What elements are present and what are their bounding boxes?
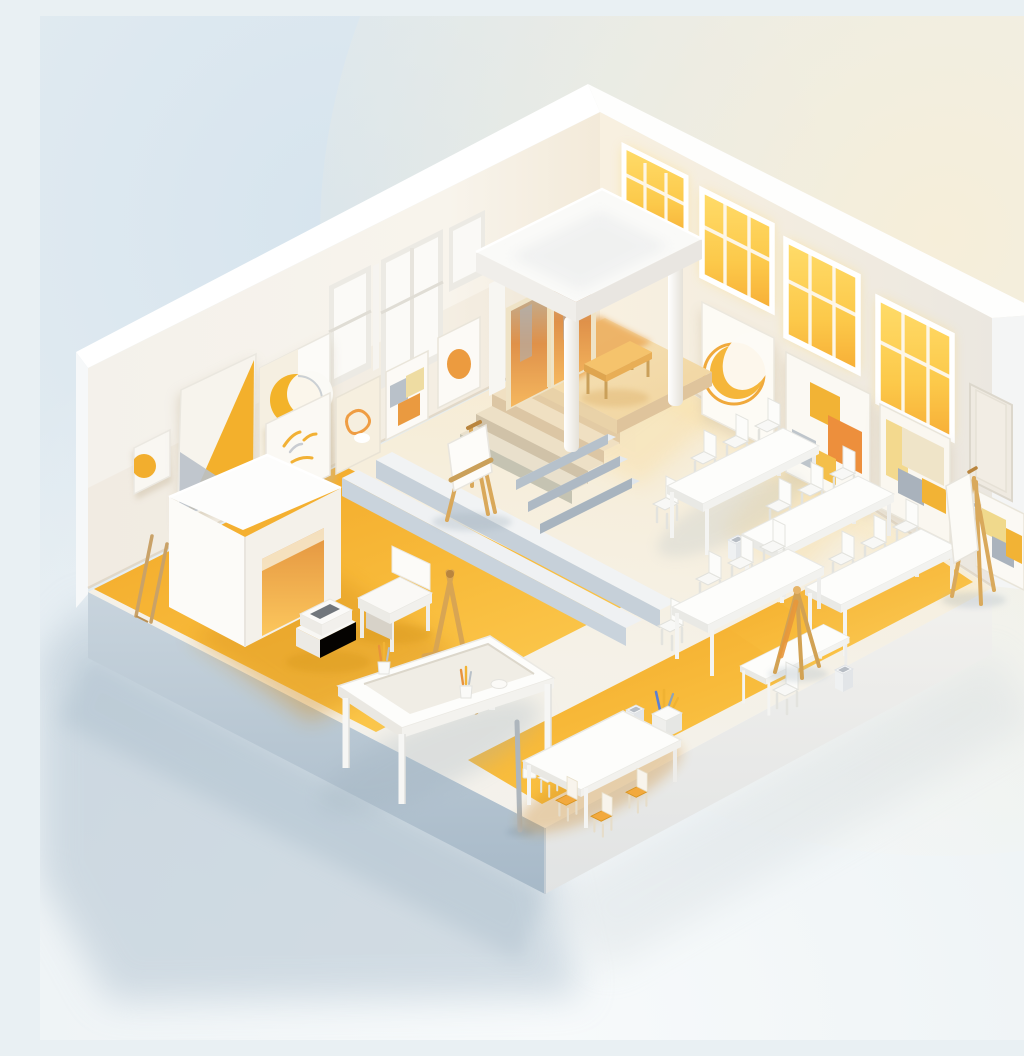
canopy-column bbox=[564, 316, 579, 452]
canopy-pilaster bbox=[489, 276, 505, 396]
isometric-art-studio-illustration: Isometric 3D cutaway of a white art stud… bbox=[40, 16, 1024, 1040]
canopy-column bbox=[668, 258, 683, 406]
scene-canvas bbox=[40, 16, 1024, 1040]
left-wall-outer-face bbox=[76, 352, 88, 608]
wall-pilaster bbox=[373, 263, 379, 371]
